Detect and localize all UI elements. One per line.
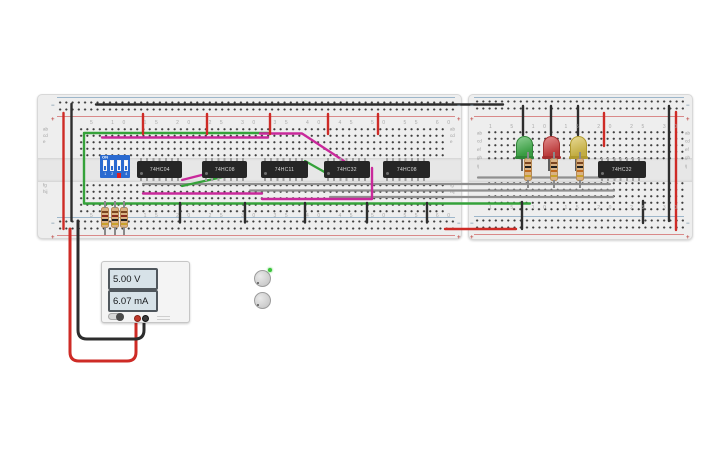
positive-terminal[interactable] — [134, 315, 141, 322]
ic-notch — [205, 172, 208, 175]
dip-number: 1 — [104, 173, 106, 176]
resistor[interactable] — [120, 207, 128, 228]
ic-notch — [327, 172, 330, 175]
row-letters: abcde — [43, 126, 48, 145]
ic-chip[interactable]: 74HC04 — [137, 161, 182, 178]
power-toggle[interactable] — [108, 313, 124, 320]
plus-rail-stripe — [57, 235, 455, 236]
voltage-display: 5.00 V — [108, 268, 158, 290]
ic-label: 74HC32 — [612, 167, 632, 173]
power-supply[interactable]: 5.00 V 6.07 mA — [101, 261, 190, 323]
current-display: 6.07 mA — [108, 290, 158, 312]
resistor[interactable] — [550, 158, 558, 181]
ic-label: 74HC11 — [275, 167, 294, 173]
ic-notch — [264, 172, 267, 175]
ic-chip[interactable]: 74HC08 — [383, 161, 430, 178]
ic-notch — [601, 172, 604, 175]
negative-terminal[interactable] — [142, 315, 149, 322]
dip-on-label: ON — [102, 155, 108, 160]
ic-label: 74HC08 — [397, 167, 417, 173]
psu-marking — [157, 319, 170, 320]
resistor[interactable] — [111, 207, 119, 228]
dip-number: 2 — [111, 173, 113, 176]
ic-label: 74HC04 — [150, 167, 170, 173]
dip-switch[interactable]: ON 1 2 3 4 — [100, 155, 130, 178]
dip-number: 4 — [125, 173, 127, 176]
hole-grid — [57, 99, 455, 113]
plus-rail-stripe — [474, 234, 684, 235]
row-letters: abcdefghij — [477, 129, 482, 170]
ic-chip[interactable]: 74HC32 — [324, 161, 370, 178]
dip-number-active[interactable]: 3 — [117, 173, 122, 178]
green-led[interactable] — [516, 136, 533, 159]
dip-slider-2[interactable] — [110, 160, 115, 171]
ic-label: 74HC32 — [337, 167, 357, 173]
plus-rail-stripe — [57, 116, 455, 117]
voltage-knob[interactable] — [254, 270, 271, 287]
row-letters: abcdefghij — [685, 129, 690, 170]
resistor[interactable] — [524, 158, 532, 181]
ic-notch — [386, 172, 389, 175]
row-letters: fghij — [43, 182, 48, 195]
ic-chip[interactable]: 74HC11 — [261, 161, 308, 178]
dip-slider-1[interactable] — [103, 160, 108, 171]
ic-label: 74HC08 — [215, 167, 235, 173]
power-indicator-led — [268, 268, 272, 272]
ic-chip[interactable]: 74HC32 — [598, 161, 646, 178]
resistor[interactable] — [576, 158, 584, 181]
ic-chip[interactable]: 74HC08 — [202, 161, 247, 178]
row-letters: abcde — [450, 126, 455, 145]
yellow-led[interactable] — [570, 136, 587, 159]
dip-slider-3[interactable] — [117, 160, 122, 171]
dip-slider-4[interactable] — [124, 160, 129, 171]
hole-grid — [78, 126, 446, 159]
psu-marking — [157, 316, 170, 317]
current-knob[interactable] — [254, 292, 271, 309]
circuit-canvas: abcde fghij abcde fghij abcdefghij abcde… — [0, 0, 725, 453]
ic-notch — [140, 172, 143, 175]
red-led[interactable] — [543, 136, 560, 159]
resistor[interactable] — [101, 207, 109, 228]
